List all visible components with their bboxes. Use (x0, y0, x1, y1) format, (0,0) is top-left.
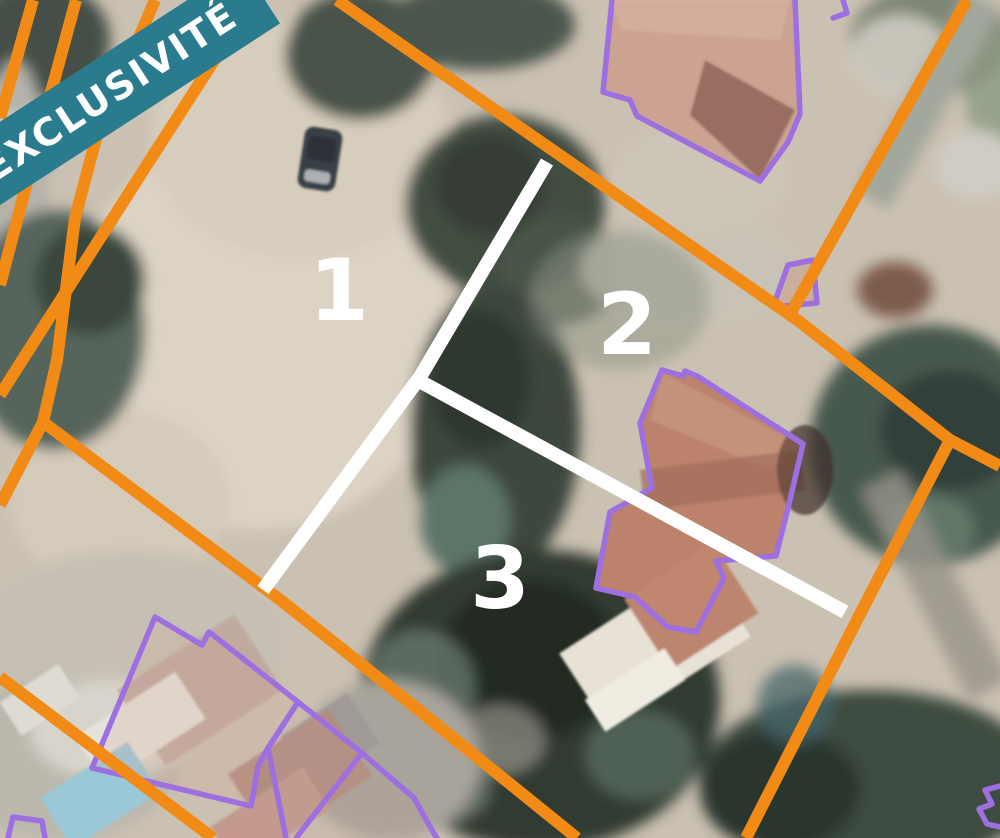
lot-1-label: 1 (309, 241, 369, 341)
lot-3-label: 3 (470, 529, 530, 629)
satellite-map: 1 2 3 (0, 0, 1000, 838)
building-outline-top-fragment (833, 0, 847, 18)
aerial-listing-photo: 1 2 3 EXCLUSIVITÉ (0, 0, 1000, 838)
lot-2-label: 2 (597, 275, 657, 375)
